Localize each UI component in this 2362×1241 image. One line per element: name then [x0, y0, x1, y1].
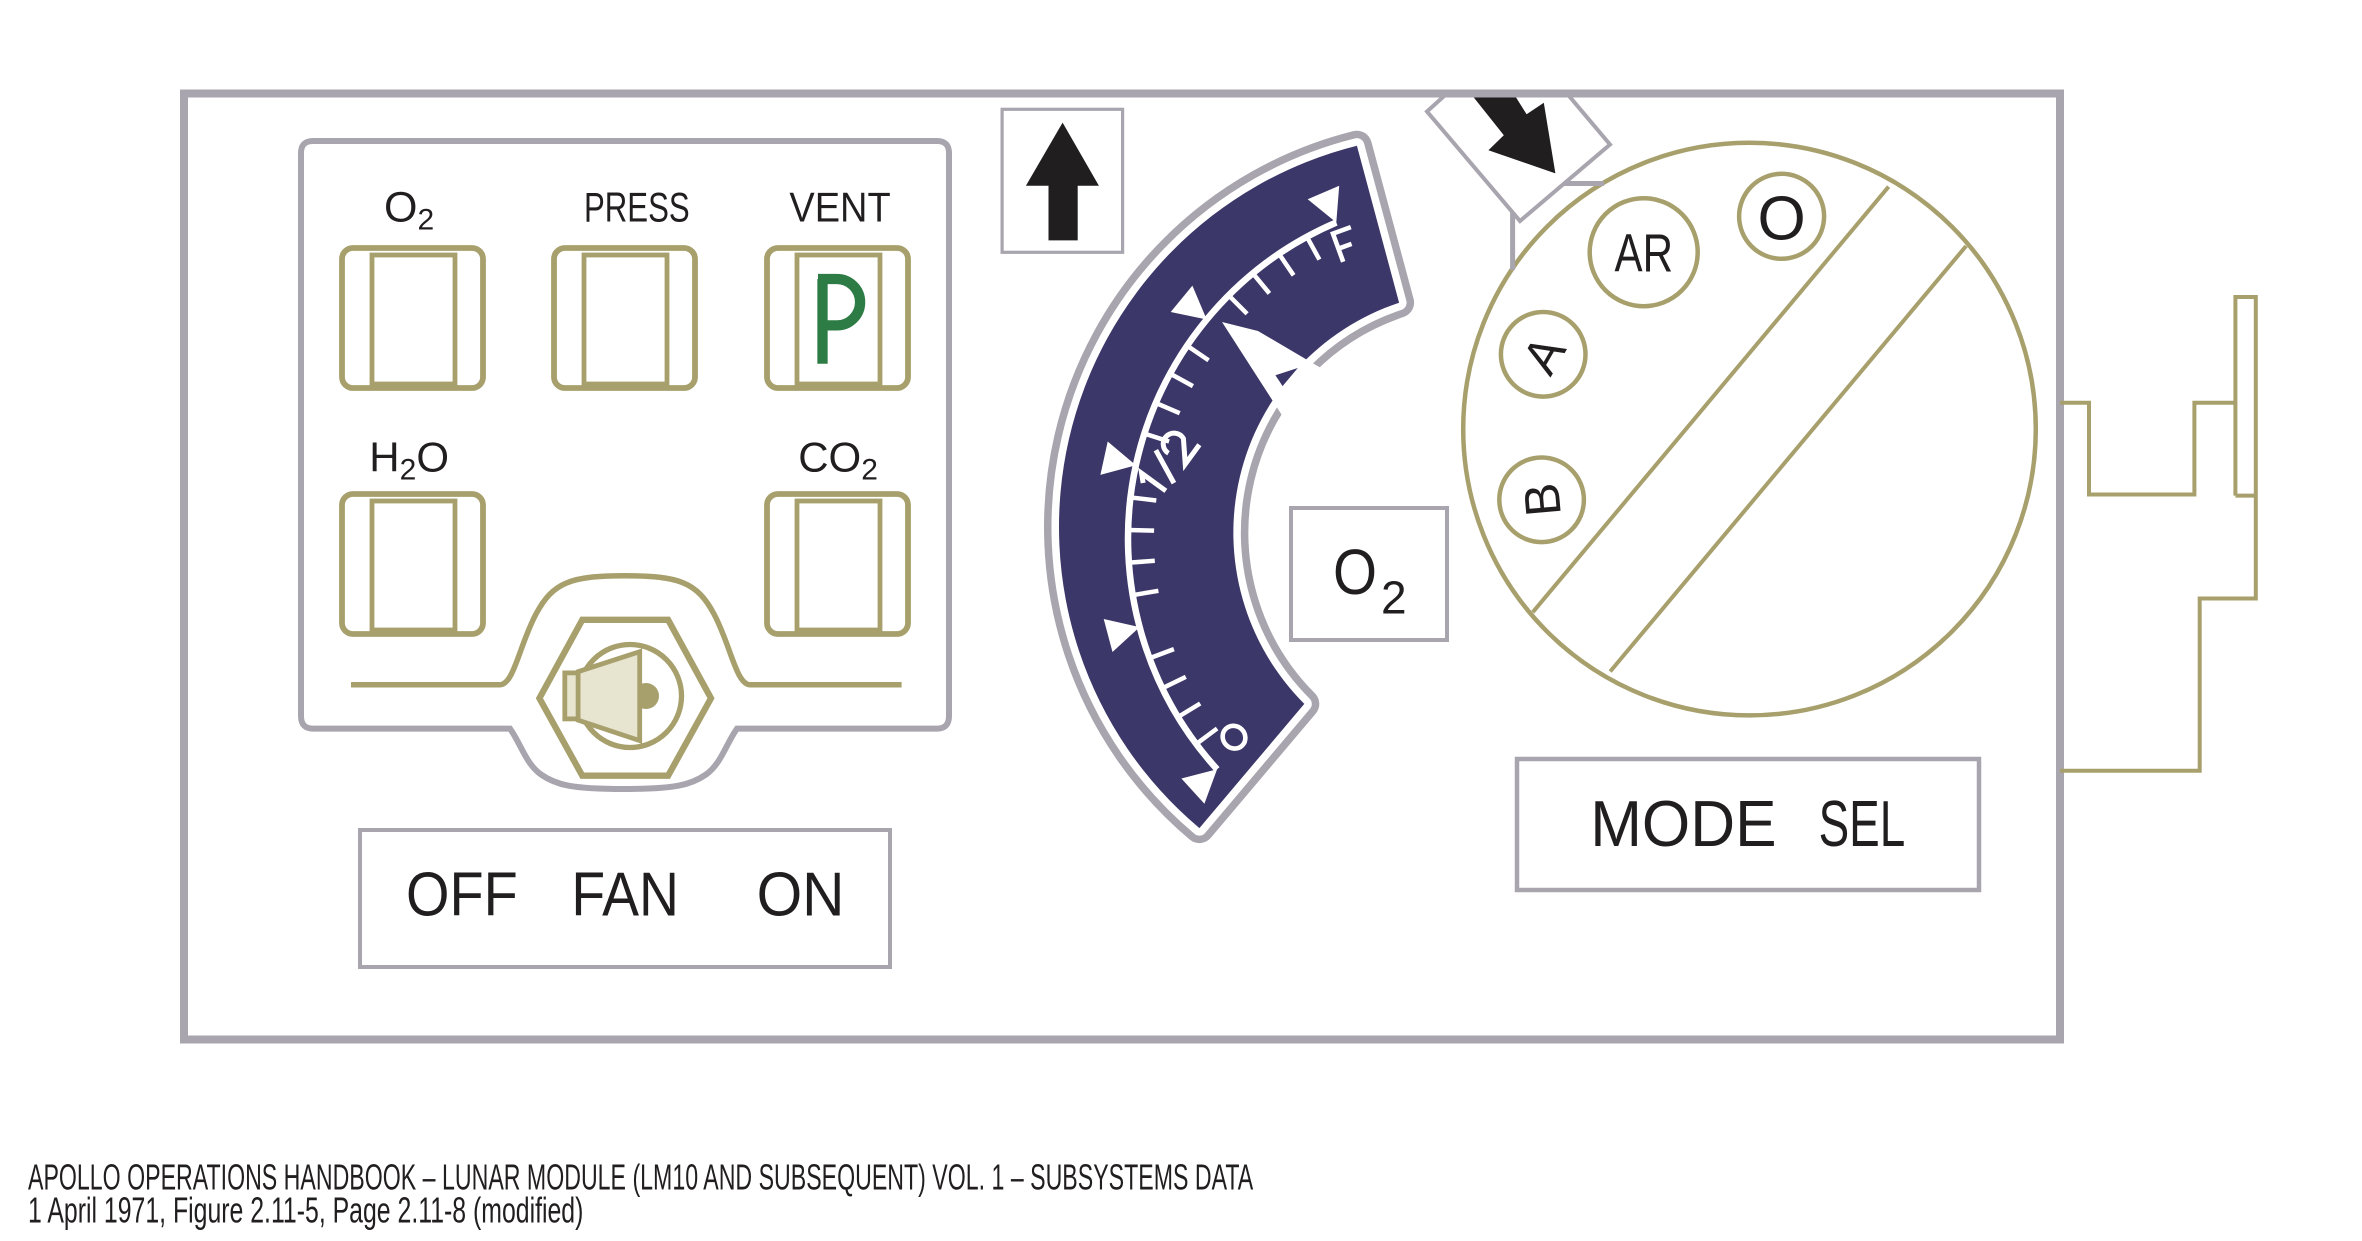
svg-text:B: B	[1513, 481, 1572, 519]
svg-text:VENT: VENT	[789, 184, 890, 231]
svg-text:O: O	[1757, 184, 1805, 253]
svg-text:MODE: MODE	[1590, 787, 1776, 860]
svg-text:ON: ON	[757, 861, 845, 930]
svg-text:OFF: OFF	[406, 861, 518, 930]
svg-text:2: 2	[1381, 572, 1407, 624]
svg-text:1 April 1971, Figure 2.11-5, P: 1 April 1971, Figure 2.11-5, Page 2.11-8…	[28, 1189, 583, 1230]
svg-text:SEL: SEL	[1819, 787, 1906, 860]
svg-text:O: O	[1333, 536, 1377, 608]
svg-text:AR: AR	[1615, 223, 1674, 283]
svg-text:FAN: FAN	[571, 861, 679, 930]
svg-text:PRESS: PRESS	[584, 184, 690, 231]
